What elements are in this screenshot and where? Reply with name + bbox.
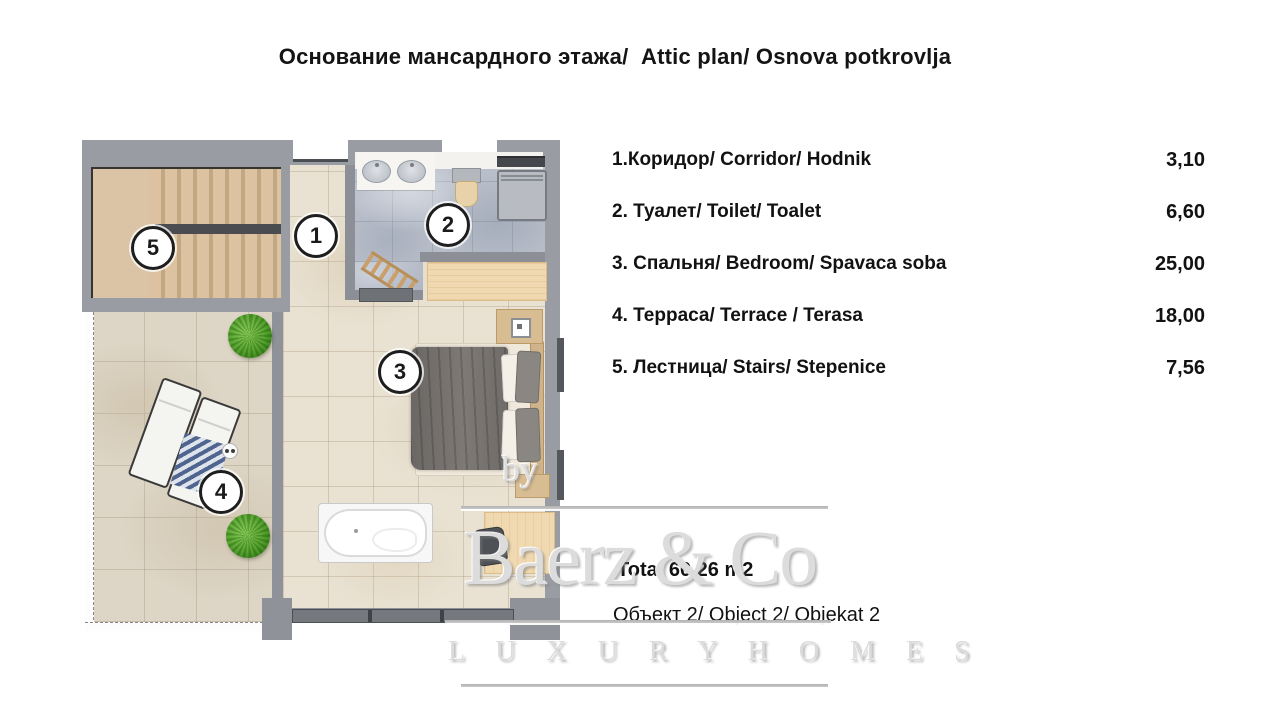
right-window-lower	[557, 450, 564, 500]
stairs-area	[91, 167, 281, 298]
room-label-toilet: 2	[426, 203, 470, 247]
terrace-bottom-railing	[85, 622, 283, 631]
page-title: Основание мансардного этажа/ Attic plan/…	[0, 44, 1230, 70]
legend-area: 6,60	[1166, 201, 1205, 224]
terrace-left-railing	[85, 312, 94, 630]
desk-chair	[472, 526, 508, 567]
bathtub	[318, 503, 433, 563]
total-area-text: Total 60,26 m2	[617, 559, 753, 582]
legend-label: 1.Коридор/ Corridor/ Hodnik	[612, 149, 871, 171]
picture-frame	[511, 318, 531, 338]
bottom-window-band	[292, 609, 514, 623]
towel-rail	[497, 156, 545, 167]
wardrobe	[427, 262, 547, 301]
top-window-left	[293, 140, 348, 162]
room-number: 3	[394, 359, 406, 385]
corner-post	[262, 598, 292, 640]
room-number: 4	[215, 479, 227, 505]
bed-blanket	[411, 347, 508, 470]
legend-label: 3. Спальня/ Bedroom/ Spavaca soba	[612, 253, 946, 275]
terrace-right-wall	[272, 312, 283, 622]
object-text: Объект 2/ Object 2/ Objekat 2	[613, 604, 880, 627]
legend-area: 25,00	[1155, 253, 1205, 276]
toilet-bench	[359, 288, 413, 302]
nightstand-top	[496, 309, 543, 344]
side-table	[222, 443, 238, 459]
legend-row: 4. Терраса/ Terrace / Terasa 18,00	[612, 305, 1205, 357]
stair-railing	[155, 224, 281, 234]
legend-row: 3. Спальня/ Bedroom/ Spavaca soba 25,00	[612, 253, 1205, 305]
legend-row: 1.Коридор/ Corridor/ Hodnik 3,10	[612, 149, 1205, 201]
legend-area: 3,10	[1166, 149, 1205, 172]
sink-left	[362, 160, 391, 183]
room-label-stairs: 5	[131, 226, 175, 270]
room-number: 2	[442, 212, 454, 238]
shower-tray	[497, 170, 547, 221]
room-label-corridor: 1	[294, 214, 338, 258]
watermark-divider-bottom	[461, 684, 828, 687]
bathtub-basin	[324, 509, 427, 557]
pillow	[515, 408, 541, 463]
legend-label: 5. Лестница/ Stairs/ Stepenice	[612, 357, 886, 379]
toilet-left-wall	[345, 165, 355, 297]
legend-area: 7,56	[1166, 357, 1205, 380]
legend-label: 4. Терраса/ Terrace / Terasa	[612, 305, 863, 327]
legend-row: 2. Туалет/ Toilet/ Toalet 6,60	[612, 201, 1205, 253]
legend-row: 5. Лестница/ Stairs/ Stepenice 7,56	[612, 357, 1205, 409]
room-number: 1	[310, 223, 322, 249]
room-number: 5	[147, 235, 159, 261]
sink-right	[397, 160, 426, 183]
right-window-upper	[557, 338, 564, 392]
floor-plan: 1 2 3 4 5	[78, 138, 570, 650]
toilet-bowl	[455, 181, 478, 207]
room-label-terrace: 4	[199, 470, 243, 514]
legend-label: 2. Туалет/ Toilet/ Toalet	[612, 201, 821, 223]
room-legend: 1.Коридор/ Corridor/ Hodnik 3,10 2. Туал…	[612, 149, 1205, 409]
legend-area: 18,00	[1155, 305, 1205, 328]
room-label-bedroom: 3	[378, 350, 422, 394]
nightstand-bottom	[515, 474, 550, 498]
potted-plant-top	[228, 314, 272, 358]
potted-plant-bottom	[226, 514, 270, 558]
stair-treads-upper	[149, 169, 281, 224]
bottom-right-wall	[510, 598, 560, 640]
toilet-bottom-wall-right	[420, 252, 545, 262]
pillow	[515, 350, 542, 403]
